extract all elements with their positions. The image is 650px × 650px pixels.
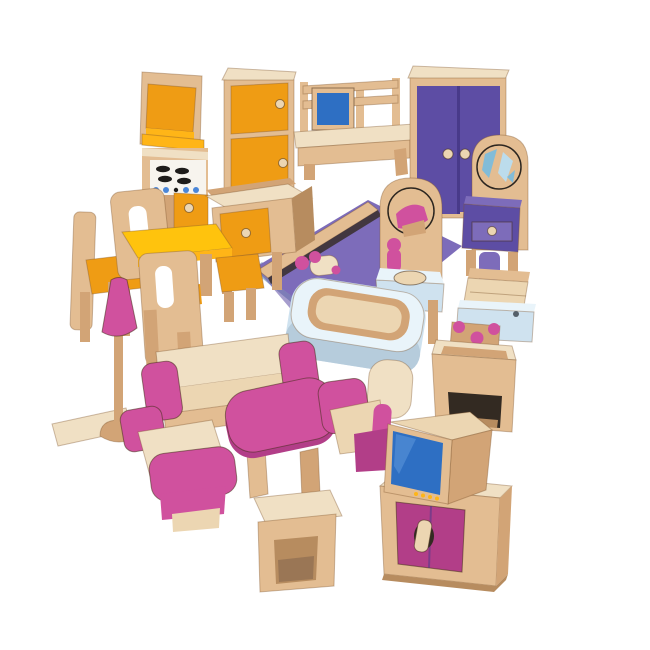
tv-button [414, 492, 418, 496]
burner [156, 166, 170, 172]
drawer-knob [488, 227, 497, 236]
tv-button [435, 497, 439, 501]
monitor-screen [317, 93, 349, 125]
toy-tv [384, 412, 492, 504]
hook-knob [488, 323, 500, 335]
burner [175, 168, 189, 174]
product-photo [0, 0, 650, 650]
door-knob [460, 149, 470, 159]
hook-knob [453, 321, 465, 333]
door-knob [242, 229, 251, 238]
chair-back-cutout [155, 265, 175, 308]
door-knob [279, 159, 288, 168]
burner [177, 178, 191, 184]
tv-button [421, 494, 425, 498]
stove-knob [193, 187, 199, 193]
lamp-pole [114, 326, 123, 424]
stove-knob [183, 187, 189, 193]
table-leg [300, 448, 320, 498]
chair-seat [216, 254, 264, 292]
stove-knob [163, 187, 169, 193]
toy-computer-desk [294, 78, 416, 180]
bed-finial [295, 256, 309, 270]
tv-button [428, 495, 432, 499]
toy-chair-right [216, 254, 264, 322]
burner [158, 176, 172, 182]
toy-stool [254, 490, 342, 592]
toy-dressing-table [462, 135, 528, 286]
door-knob [443, 149, 453, 159]
door-knob [276, 100, 285, 109]
doll-head [309, 251, 321, 263]
door-knob [185, 204, 194, 213]
microwave-door [146, 84, 196, 132]
dollhouse-furniture-scene [0, 0, 650, 650]
